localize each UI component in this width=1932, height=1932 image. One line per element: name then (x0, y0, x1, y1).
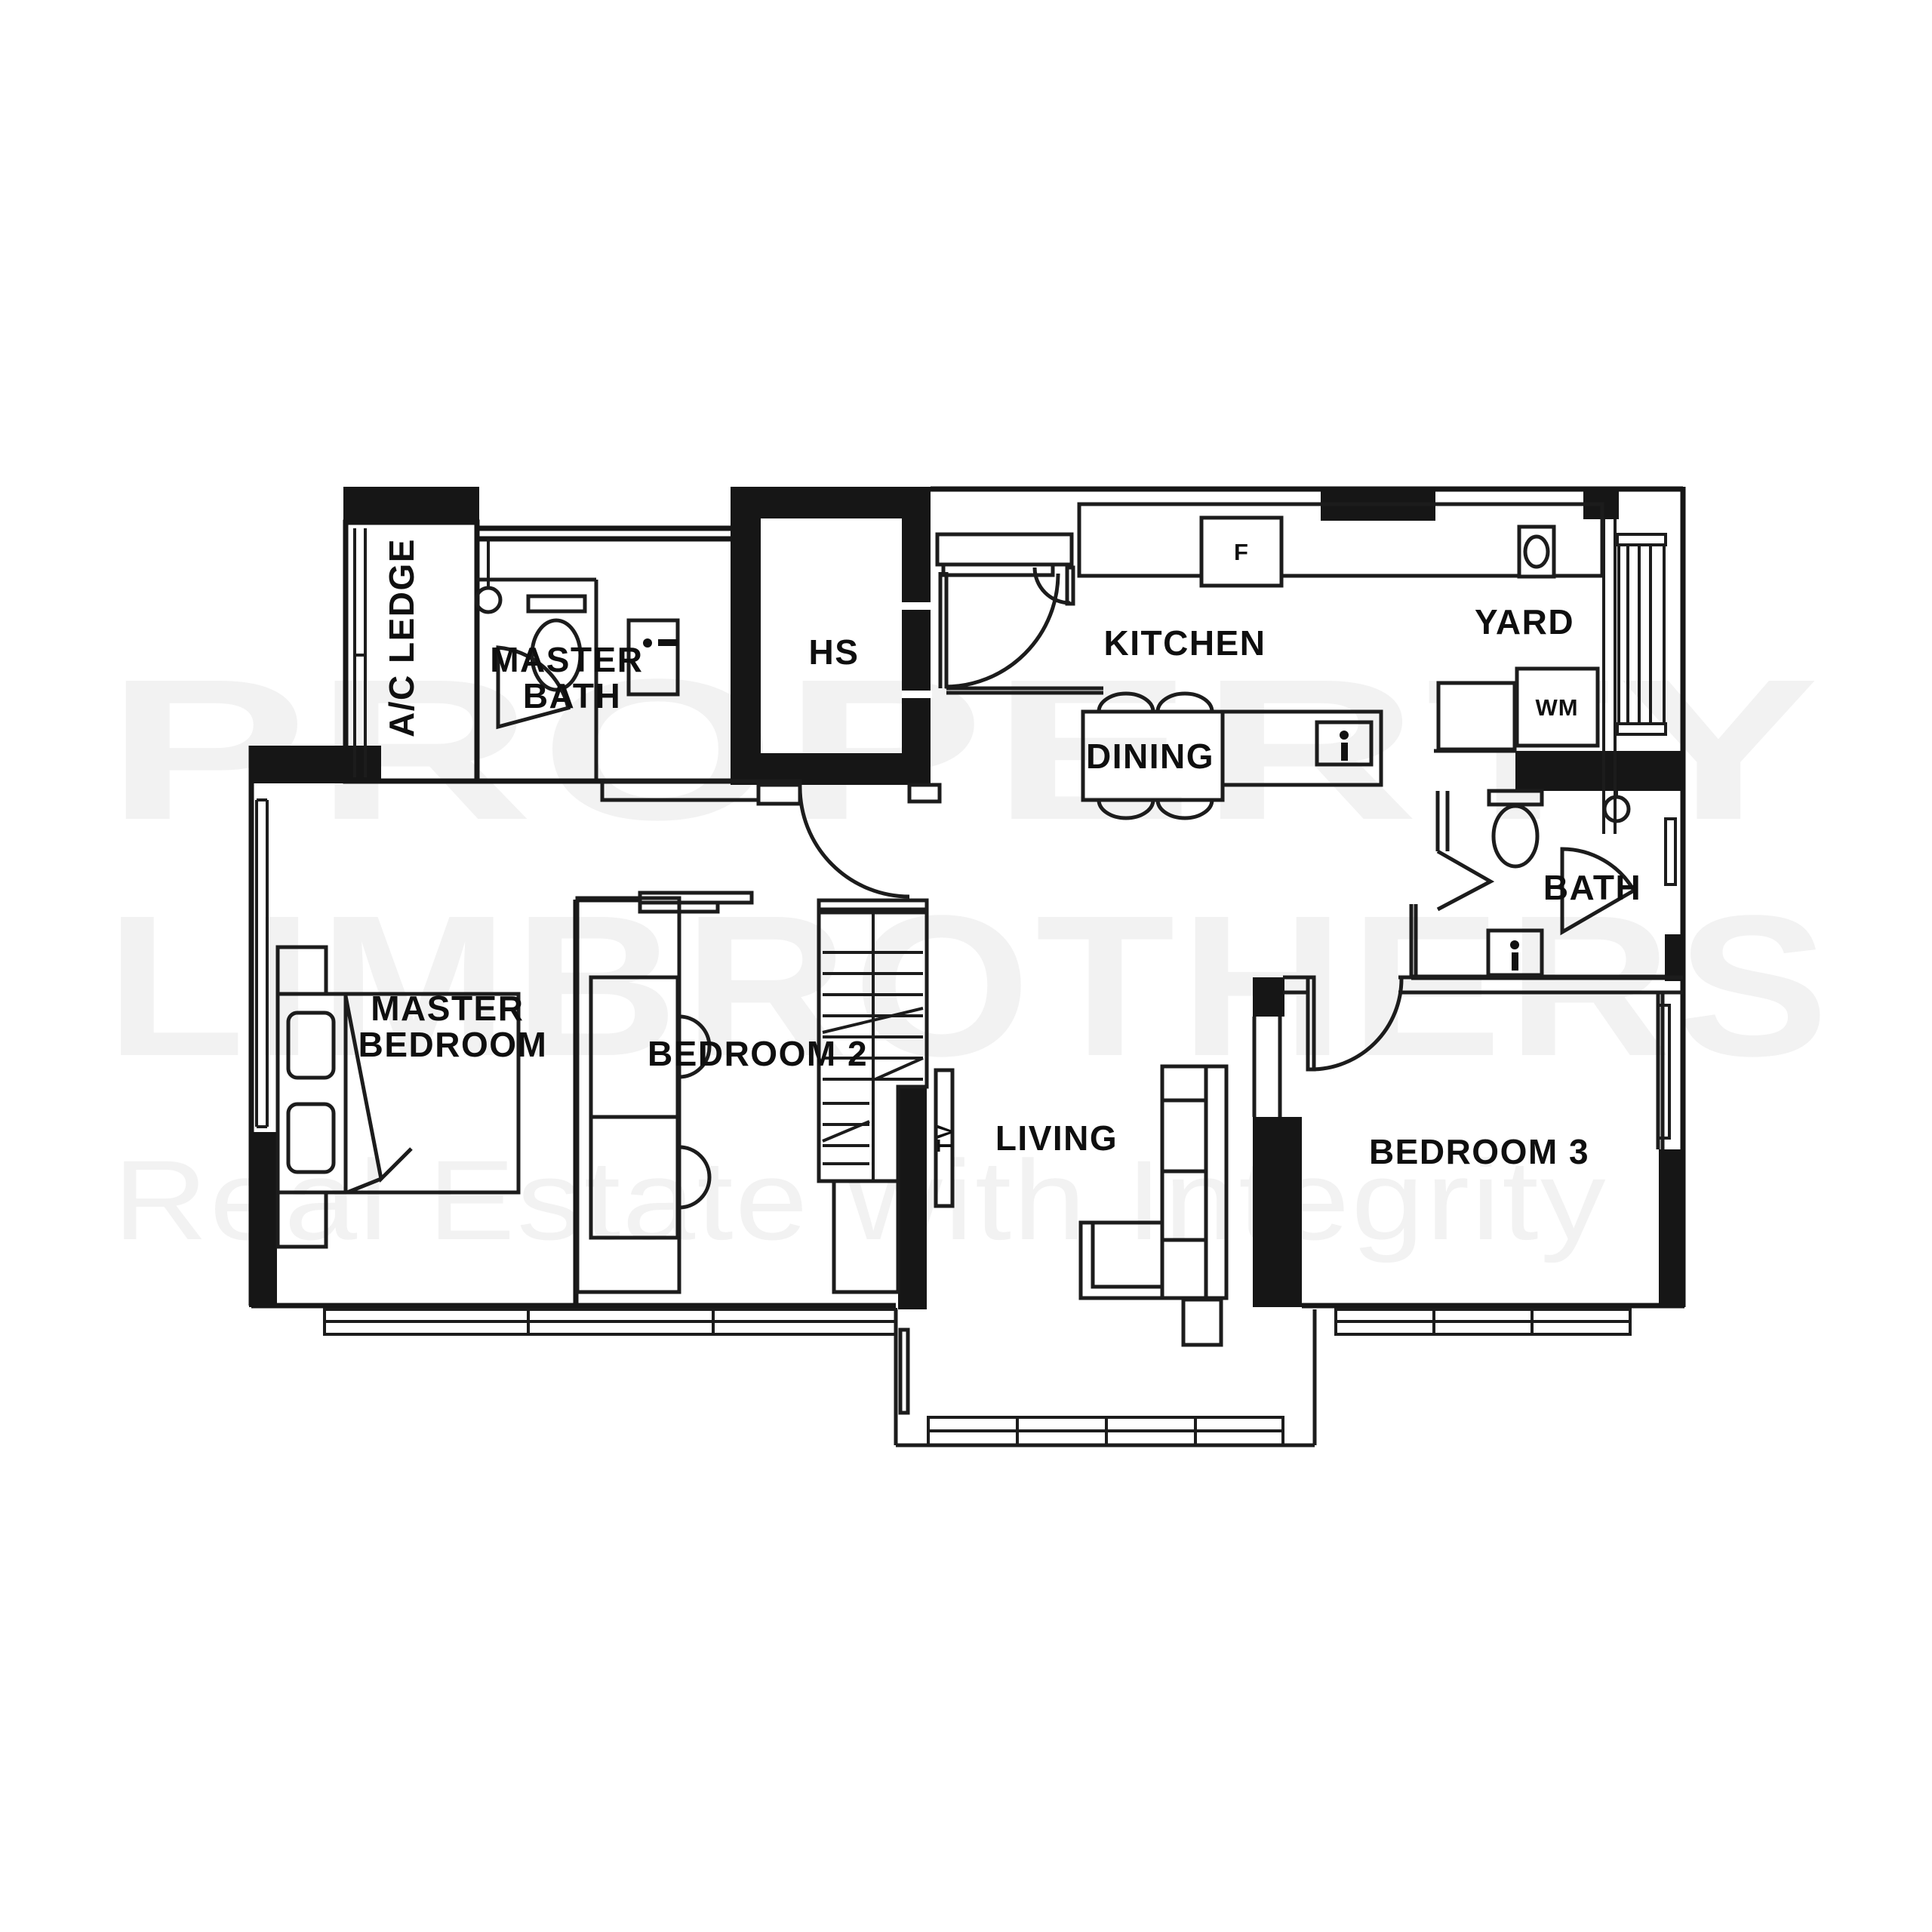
wall-living-bed3-bottom-column (1253, 1117, 1302, 1307)
basin-spout-icon (658, 639, 678, 646)
label-master-bedroom: MASTER BEDROOM (358, 989, 548, 1064)
floor-plan-svg: PROPERTY LIMBROTHERS Real Estate with In… (0, 0, 1932, 1932)
label-bath: BATH (1543, 868, 1641, 907)
shower-head-icon (476, 588, 500, 612)
door-entry-second-leaf-panel (1067, 568, 1073, 604)
label-ac-ledge: A/C LEDGE (382, 538, 421, 737)
label-living: LIVING (995, 1118, 1118, 1158)
label-washing-machine: WM (1535, 694, 1578, 721)
balcony-curtain (900, 1330, 908, 1413)
side-table (1183, 1300, 1221, 1345)
window-masterbed-bottom (325, 1309, 896, 1334)
wall-masterbath-top (477, 528, 736, 539)
window-balcony-bottom (928, 1417, 1283, 1445)
bath-spout-icon (1512, 952, 1518, 971)
wall-living-bed3-top-column (1253, 977, 1284, 1017)
wall-ac-ledge-cap (343, 487, 479, 522)
entry-recess-step (937, 534, 1072, 575)
island-tap-icon (1340, 731, 1349, 740)
hs-bottom-step (758, 785, 800, 804)
label-master-bedroom-line2: BEDROOM (358, 1025, 548, 1064)
label-kitchen: KITCHEN (1104, 623, 1266, 663)
label-yard: YARD (1475, 602, 1574, 641)
wall-bed2-living-column (898, 1087, 927, 1309)
laundry-sink-box (1438, 683, 1515, 749)
floor-plan-page: PROPERTY LIMBROTHERS Real Estate with In… (0, 0, 1932, 1932)
label-master-bedroom-line1: MASTER (371, 989, 524, 1028)
wall-yard-bath-divider (1515, 751, 1683, 791)
hs-wall-joint-top (902, 602, 932, 610)
label-bedroom2: BEDROOM 2 (648, 1034, 868, 1073)
label-tv: TV (934, 1124, 956, 1152)
label-dining: DINING (1086, 737, 1214, 776)
wall-masterbed-topleft (251, 746, 381, 783)
watermark-line2: LIMBROTHERS (106, 874, 1834, 1098)
label-master-bath-line1: MASTER (490, 640, 643, 679)
island-spout-icon (1341, 743, 1348, 761)
bath-tap-icon (1510, 940, 1519, 949)
window-bed3-bottom (1336, 1309, 1630, 1334)
label-hs: HS (809, 632, 860, 672)
toilet-cistern (528, 596, 585, 611)
label-fridge: F (1234, 539, 1249, 565)
hs-wall-joint-bottom (902, 691, 932, 698)
label-master-bath-line2: BATH (523, 676, 621, 715)
label-bedroom3: BEDROOM 3 (1369, 1132, 1589, 1171)
